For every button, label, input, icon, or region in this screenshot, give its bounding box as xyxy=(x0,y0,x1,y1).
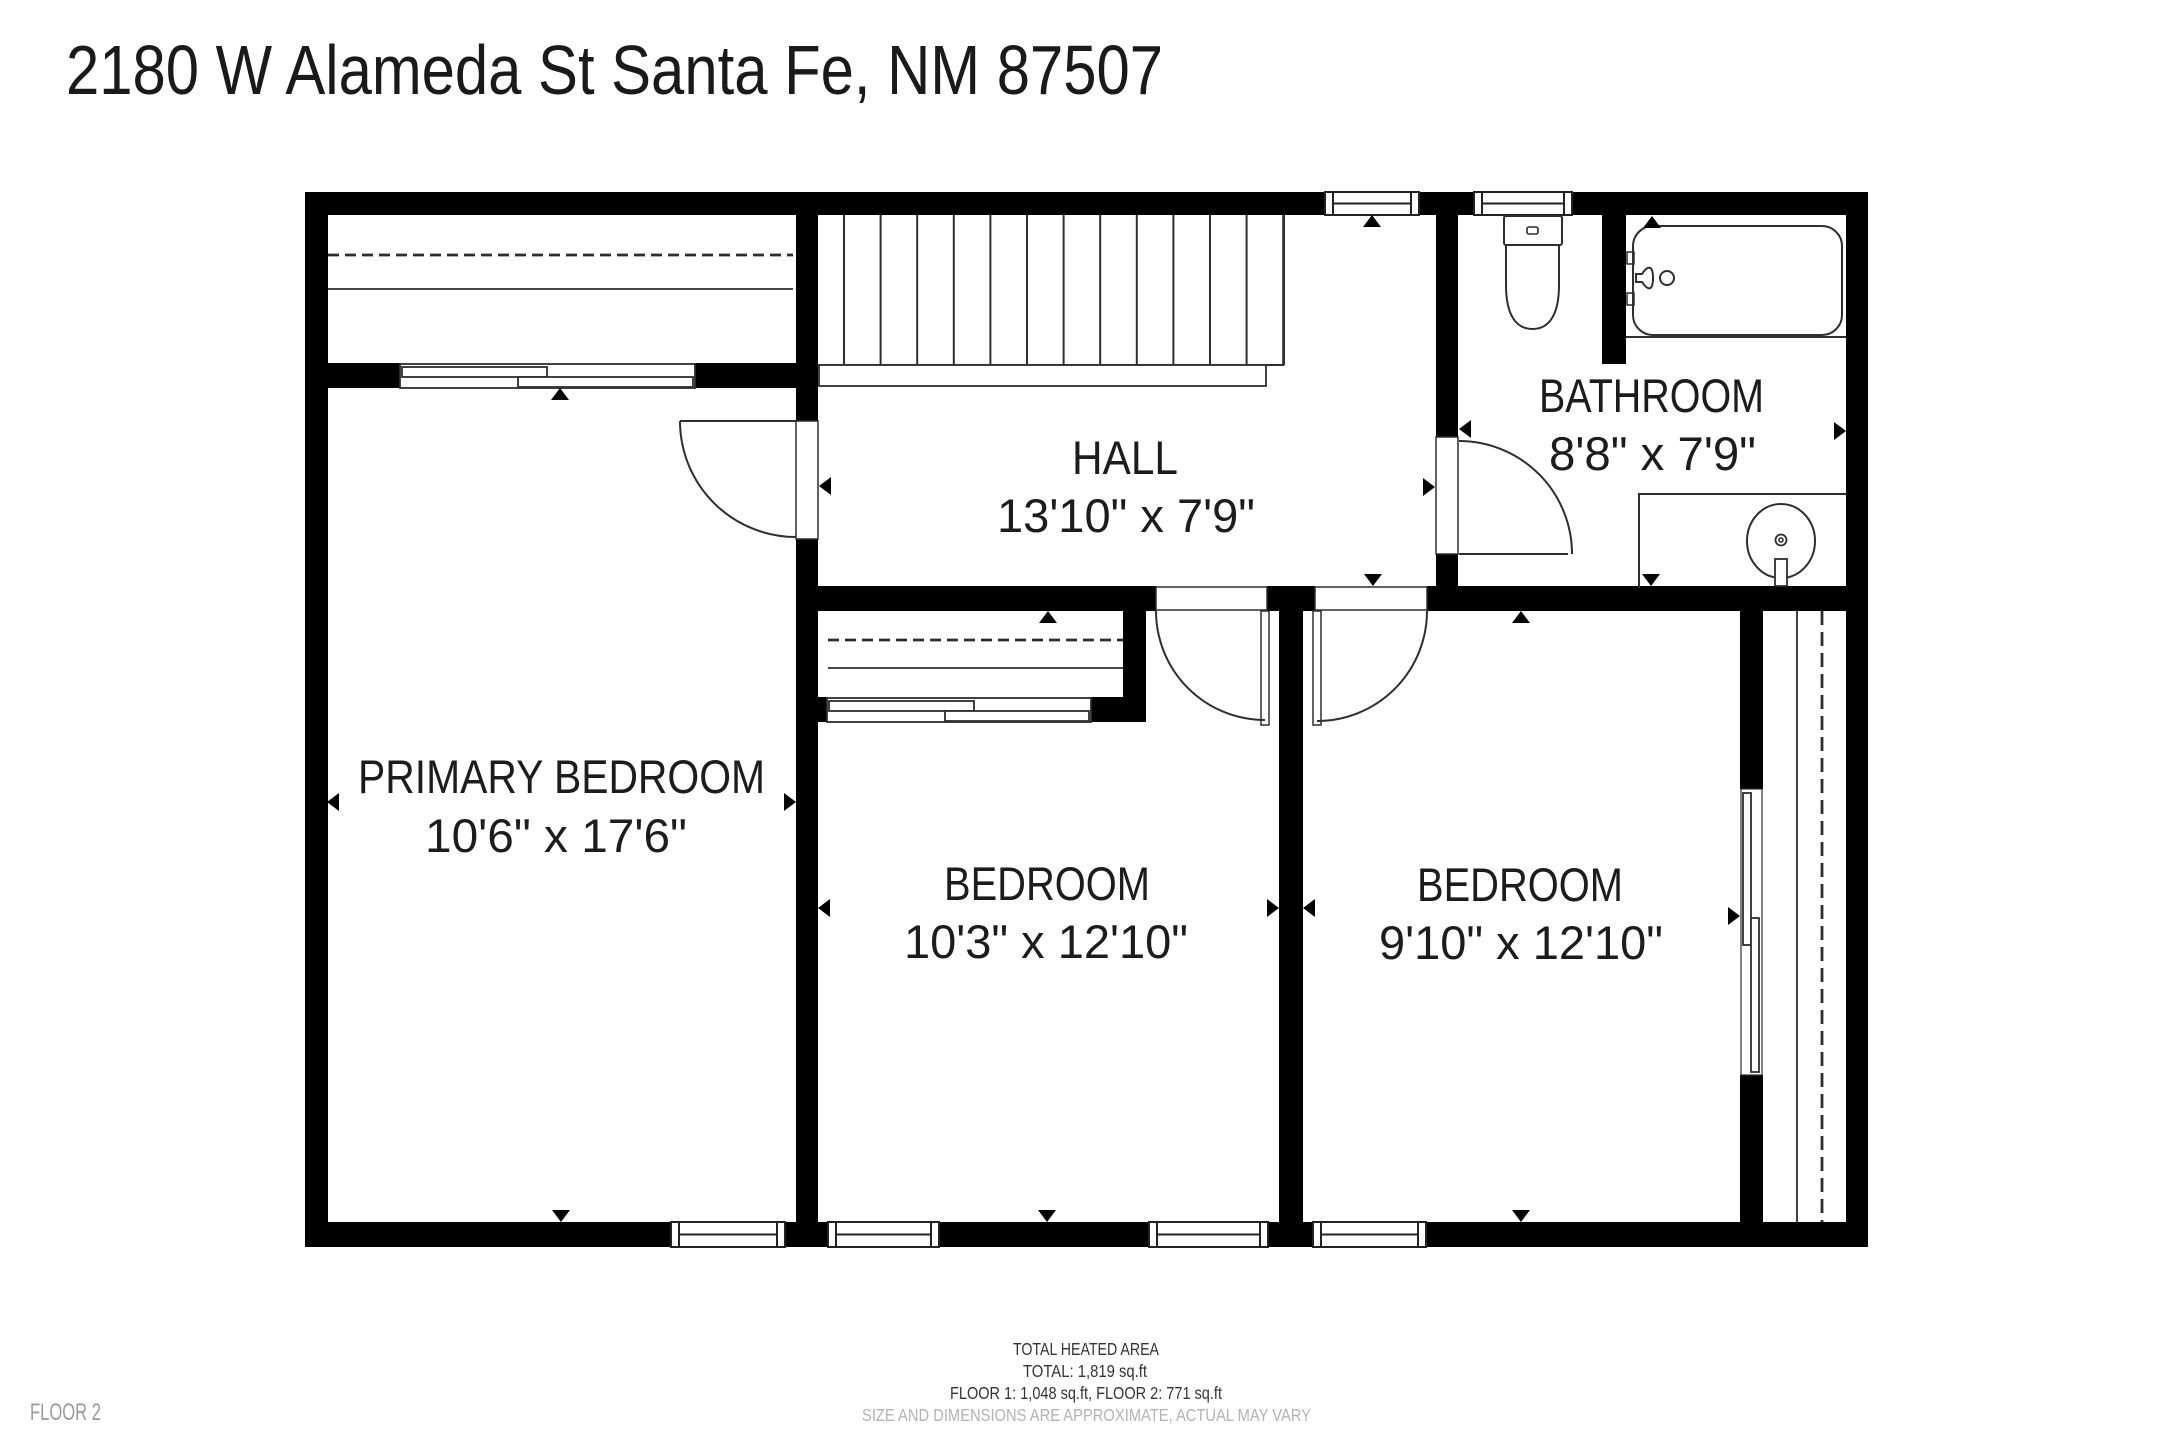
svg-text:FLOOR 2: FLOOR 2 xyxy=(30,1399,101,1426)
svg-text:TOTAL: 1,819 sq.ft: TOTAL: 1,819 sq.ft xyxy=(1023,1361,1147,1381)
svg-text:10'3" x 12'10": 10'3" x 12'10" xyxy=(904,915,1188,968)
svg-text:9'10" x 12'10": 9'10" x 12'10" xyxy=(1379,916,1663,969)
svg-text:SIZE AND DIMENSIONS ARE APPROX: SIZE AND DIMENSIONS ARE APPROXIMATE, ACT… xyxy=(862,1405,1311,1425)
svg-text:BEDROOM: BEDROOM xyxy=(944,857,1150,910)
svg-text:BEDROOM: BEDROOM xyxy=(1417,858,1623,911)
svg-text:8'8" x 7'9": 8'8" x 7'9" xyxy=(1549,427,1756,480)
svg-text:13'10" x 7'9": 13'10" x 7'9" xyxy=(997,489,1255,542)
svg-text:BATHROOM: BATHROOM xyxy=(1539,369,1764,422)
svg-text:HALL: HALL xyxy=(1072,431,1178,484)
svg-text:PRIMARY BEDROOM: PRIMARY BEDROOM xyxy=(358,750,765,803)
svg-text:10'6" x 17'6": 10'6" x 17'6" xyxy=(425,809,687,862)
svg-text:FLOOR 1: 1,048 sq.ft, FLOOR 2:: FLOOR 1: 1,048 sq.ft, FLOOR 2: 771 sq.ft xyxy=(950,1383,1222,1403)
svg-text:2180 W Alameda St Santa Fe, NM: 2180 W Alameda St Santa Fe, NM 87507 xyxy=(66,31,1163,109)
svg-text:TOTAL HEATED AREA: TOTAL HEATED AREA xyxy=(1013,1339,1159,1359)
